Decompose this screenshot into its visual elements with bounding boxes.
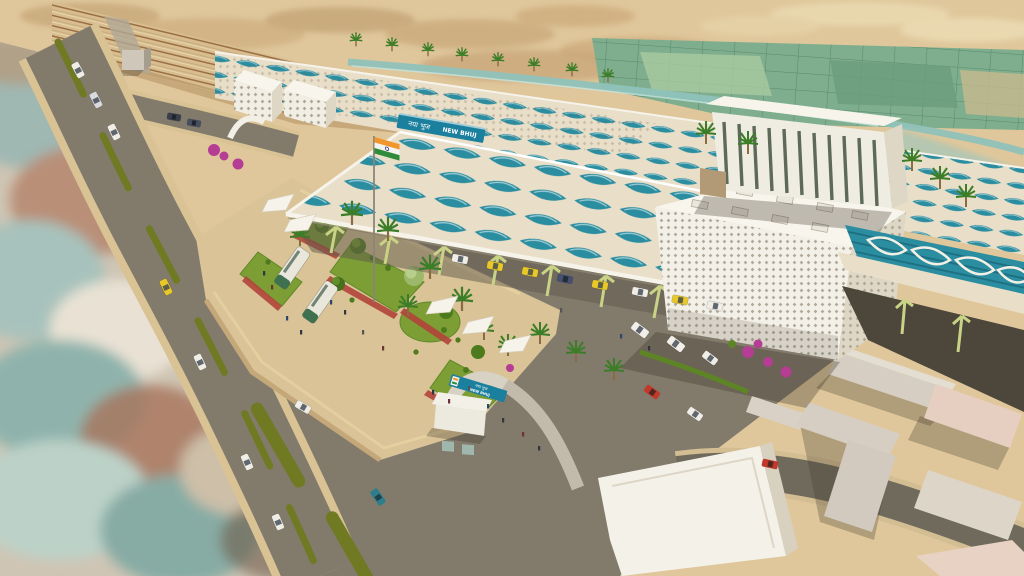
render-canvas: Aerial 3D architectural render of a rede… <box>0 0 1024 576</box>
station-aerial-render: Aerial 3D architectural render of a rede… <box>0 0 1024 576</box>
entrance-porch <box>700 168 726 198</box>
